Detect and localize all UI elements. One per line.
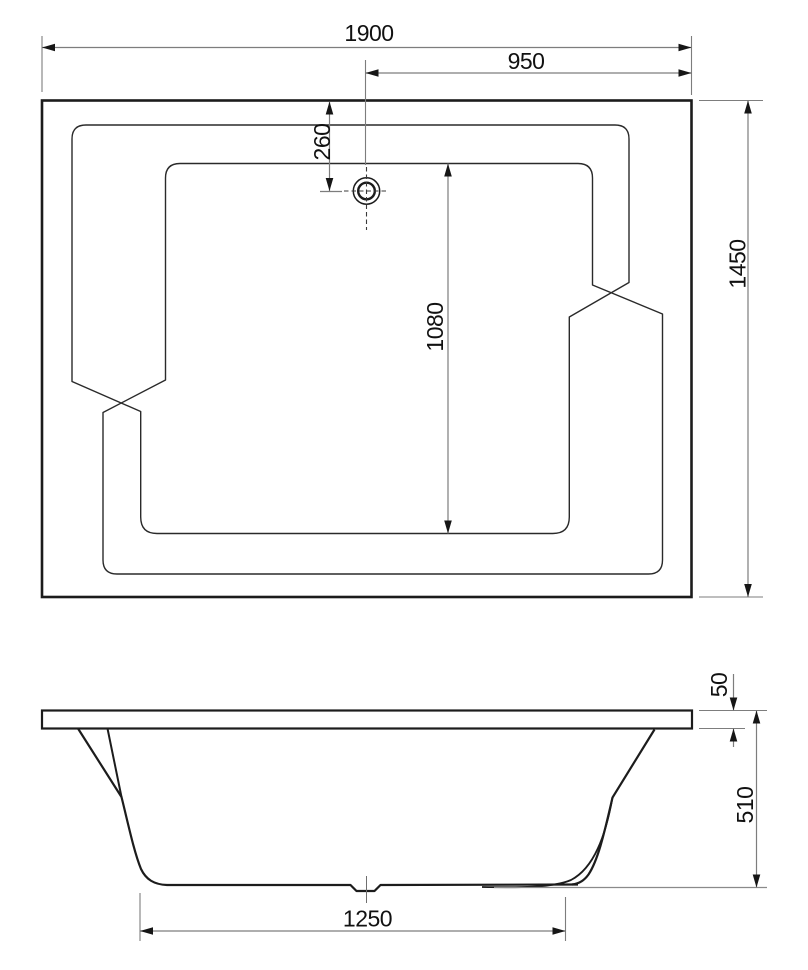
rim-profile — [42, 711, 692, 729]
drawing-sheet: 1900 950 260 1080 — [0, 0, 808, 970]
dim-label-950: 950 — [508, 48, 545, 74]
dim-overall-width: 1450 — [699, 101, 763, 598]
dim-label-260: 260 — [309, 124, 335, 161]
dim-bottom-length: 1250 — [140, 893, 566, 941]
dim-label-1900: 1900 — [344, 20, 393, 46]
bathtub-technical-drawing: 1900 950 260 1080 — [0, 0, 808, 970]
dim-label-1250: 1250 — [343, 906, 392, 932]
dim-body-height: 510 — [732, 711, 758, 888]
right-wall-outer — [482, 798, 613, 888]
dim-label-1450: 1450 — [725, 239, 751, 288]
right-wall-inner — [572, 730, 655, 885]
left-wall-and-bottom — [78, 729, 578, 892]
dim-label-50: 50 — [706, 673, 732, 698]
top-view: 1900 950 260 1080 — [42, 20, 763, 597]
side-view: 50 510 1250 — [42, 673, 767, 941]
dim-label-1080: 1080 — [422, 302, 448, 351]
dim-overall-length: 1900 — [42, 20, 692, 95]
dim-label-510: 510 — [732, 787, 758, 824]
